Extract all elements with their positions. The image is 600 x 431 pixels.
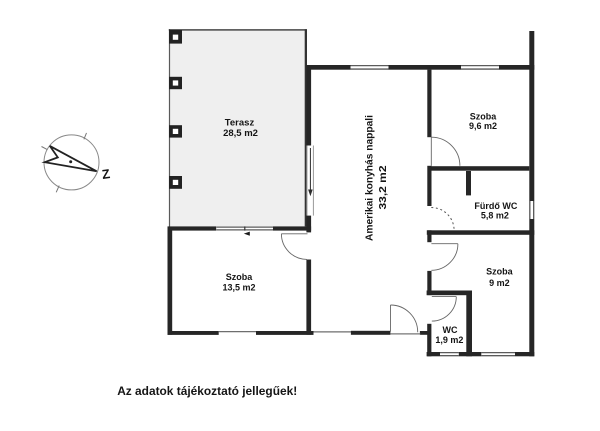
svg-text:13,5 m2: 13,5 m2	[222, 282, 255, 292]
svg-text:Fürdő WC: Fürdő WC	[474, 201, 517, 211]
svg-text:1,9 m2: 1,9 m2	[435, 335, 463, 345]
svg-text:33,2 m2: 33,2 m2	[378, 165, 389, 209]
svg-text:Az adatok tájékoztató jellegűe: Az adatok tájékoztató jellegűek!	[117, 384, 297, 398]
svg-text:Z: Z	[101, 166, 111, 182]
svg-text:9 m2: 9 m2	[489, 278, 510, 288]
svg-text:Szoba: Szoba	[470, 111, 497, 121]
svg-text:Szoba: Szoba	[486, 267, 513, 277]
svg-text:28,5 m2: 28,5 m2	[223, 128, 258, 139]
svg-text:Terasz: Terasz	[225, 117, 255, 128]
svg-text:5,8 m2: 5,8 m2	[481, 211, 509, 221]
svg-text:WC: WC	[443, 325, 458, 335]
svg-text:Szoba: Szoba	[226, 272, 253, 282]
svg-text:9,6 m2: 9,6 m2	[469, 121, 497, 131]
svg-text:Amerikai konyhás nappali: Amerikai konyhás nappali	[365, 115, 376, 241]
